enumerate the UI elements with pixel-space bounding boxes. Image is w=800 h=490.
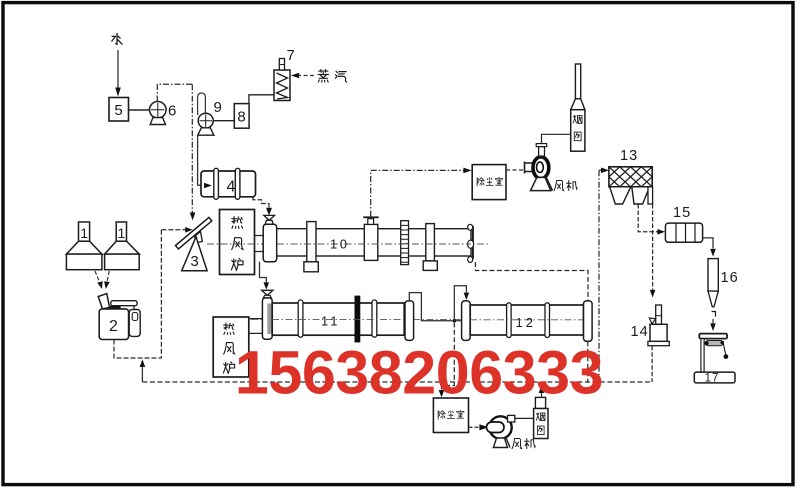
- svg-text:4: 4: [227, 179, 236, 196]
- svg-text:7: 7: [287, 47, 295, 64]
- svg-text:13: 13: [620, 148, 638, 164]
- svg-text:10: 10: [330, 237, 349, 252]
- svg-text:9: 9: [214, 99, 222, 116]
- svg-text:12: 12: [516, 315, 536, 330]
- svg-text:1: 1: [80, 225, 88, 241]
- svg-text:14: 14: [631, 324, 649, 340]
- svg-text:17: 17: [705, 373, 720, 385]
- svg-text:5: 5: [114, 102, 122, 119]
- svg-text:16: 16: [721, 270, 739, 286]
- svg-text:8: 8: [237, 109, 245, 126]
- svg-text:11: 11: [321, 314, 341, 329]
- svg-text:2: 2: [109, 318, 118, 335]
- svg-text:15638206333: 15638206333: [235, 339, 603, 407]
- svg-text:1: 1: [118, 225, 126, 241]
- svg-text:15: 15: [673, 205, 691, 221]
- svg-text:6: 6: [168, 103, 176, 120]
- svg-text:3: 3: [190, 253, 198, 270]
